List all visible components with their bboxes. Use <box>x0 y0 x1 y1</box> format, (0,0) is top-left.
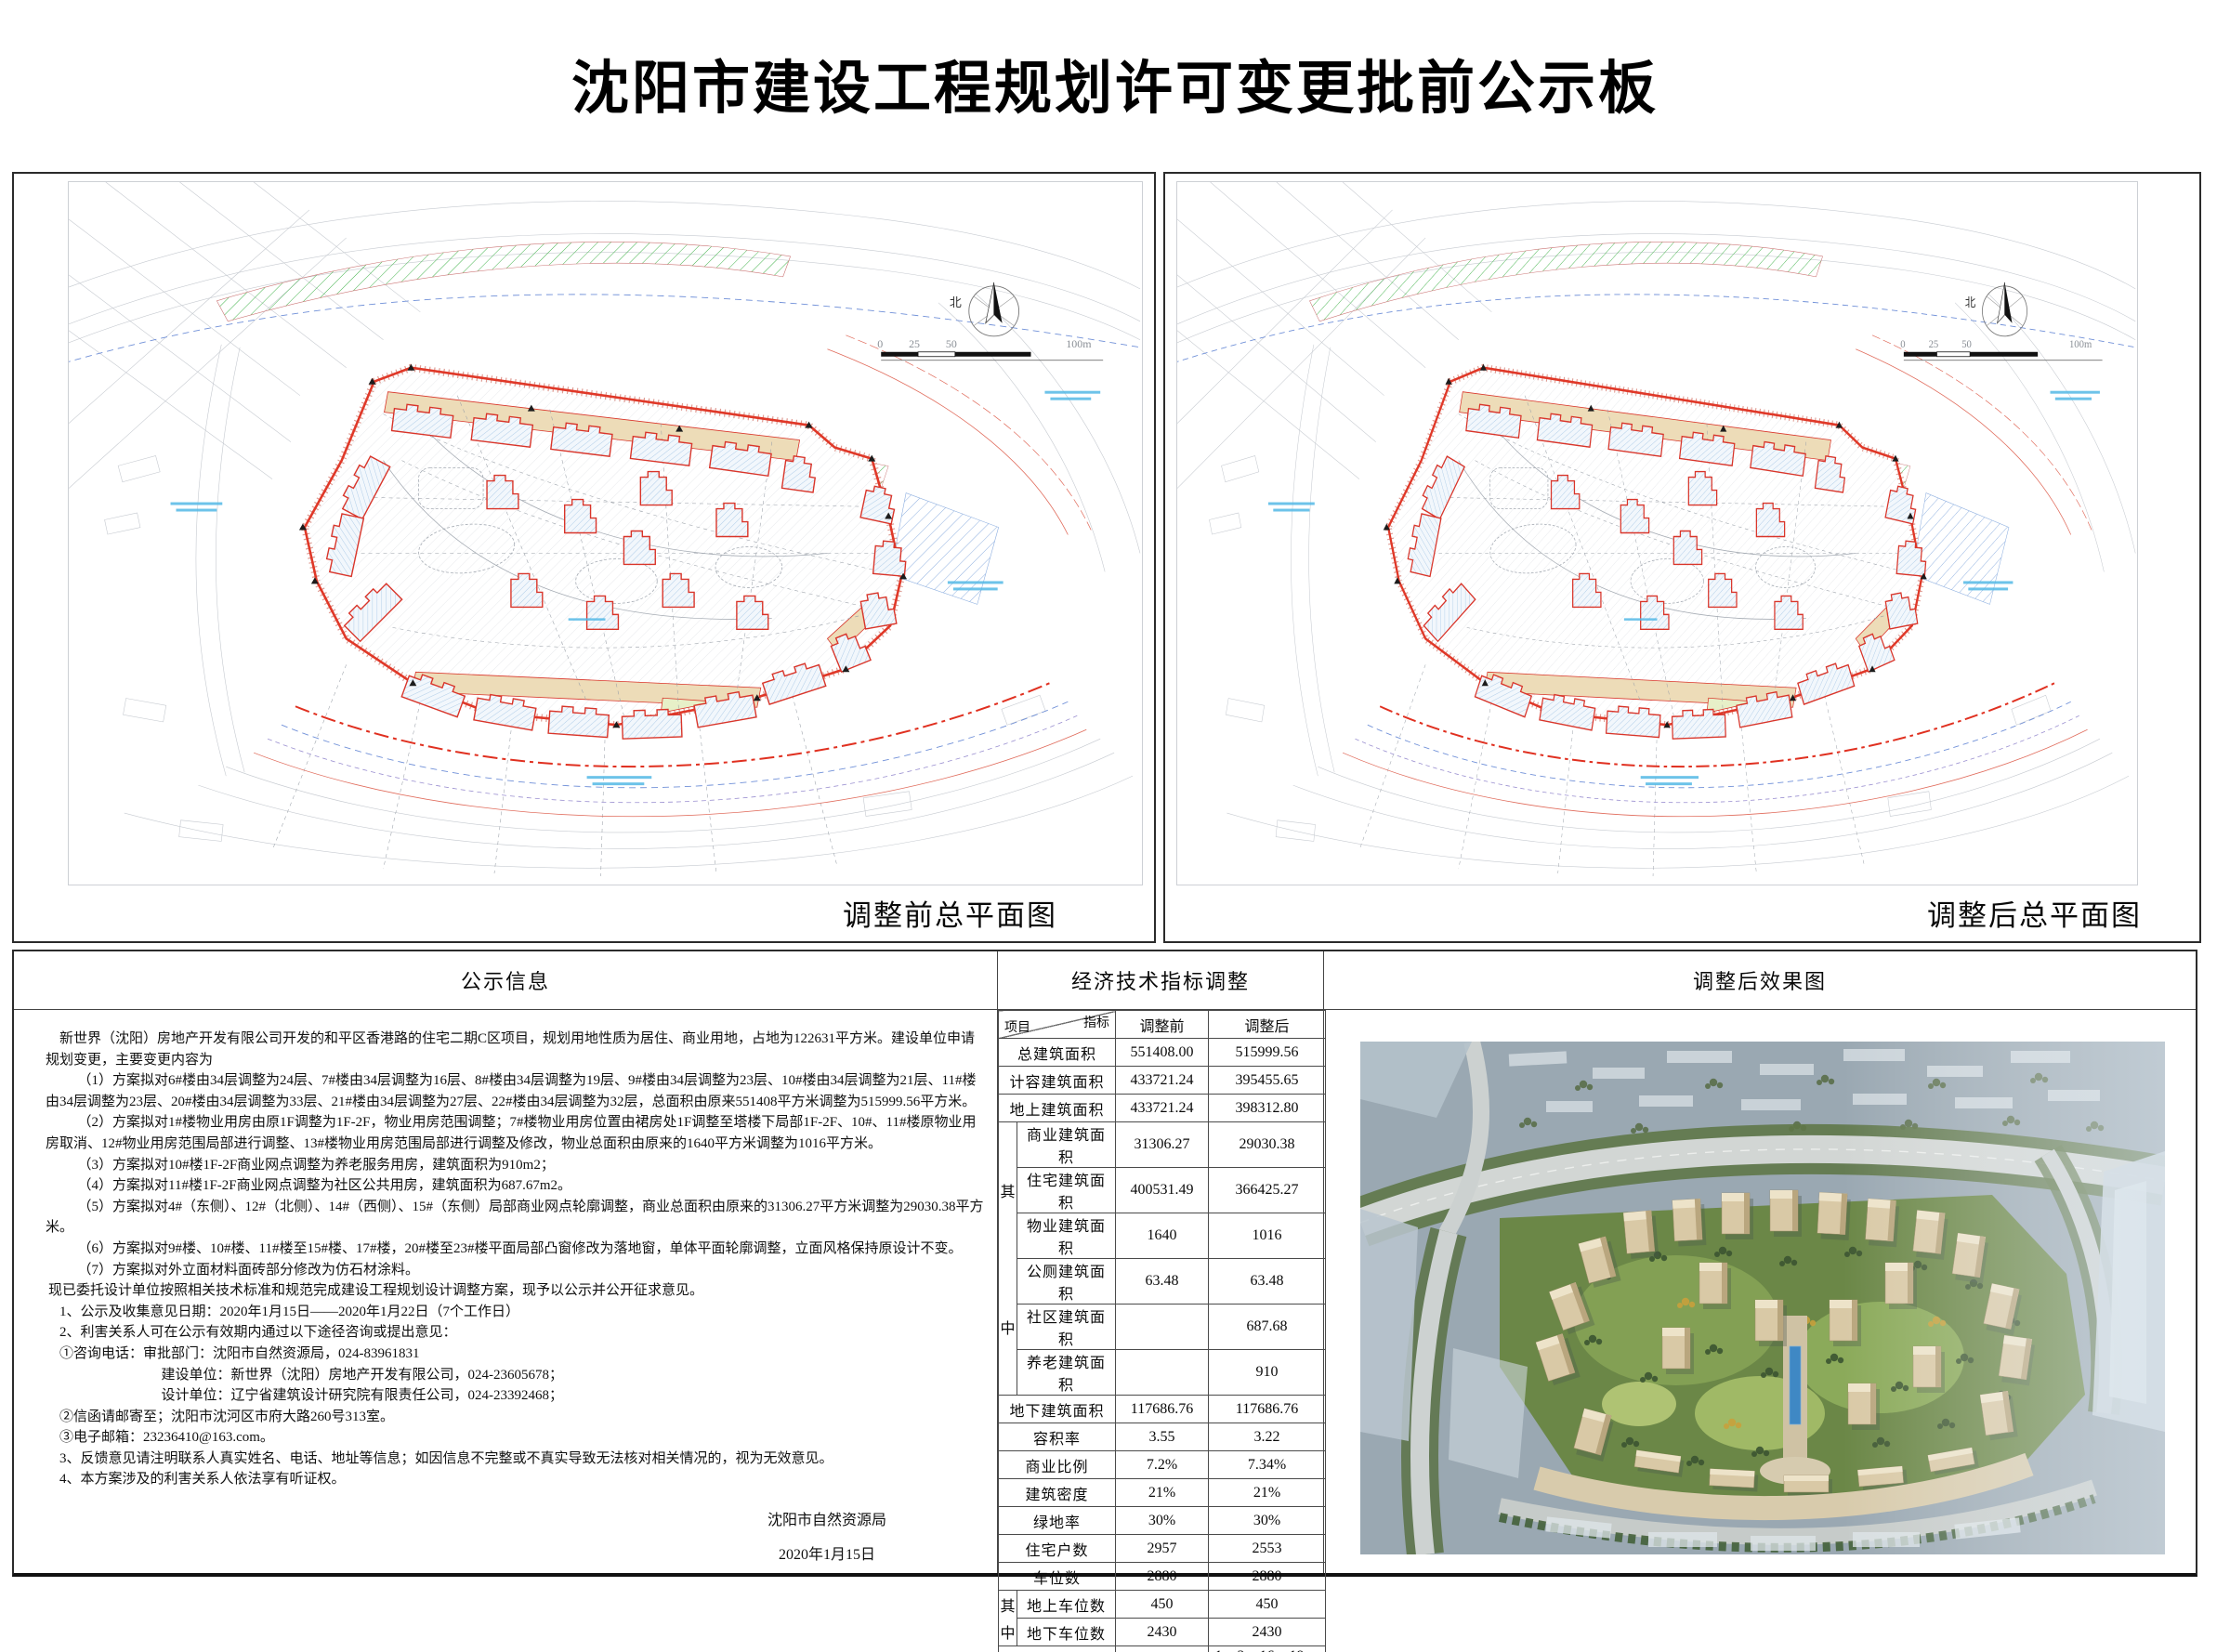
render-body <box>1324 1010 2196 1578</box>
notice-paragraph: 2、利害关系人可在公示有效期内通过以下途径咨询或提出意见： <box>46 1322 986 1344</box>
col-header-before: 调整前 <box>1116 1011 1209 1039</box>
table-row: 住宅户数29572553 <box>999 1535 1326 1563</box>
notice-paragraph: ③电子邮箱：23236410@163.com。 <box>46 1427 986 1449</box>
col-header-after: 调整后 <box>1209 1011 1326 1039</box>
notice-paragraph: 3、反馈意见请注明联系人真实姓名、电话、地址等信息；如因信息不完整或不真实导致无… <box>46 1449 986 1470</box>
notice-paragraph: 4、本方案涉及的利害关系人依法享有听证权。 <box>46 1469 986 1490</box>
notice-paragraph: （2）方案拟对1#楼物业用房由原1F调整为1F-2F，物业用房范围调整；7#楼物… <box>46 1112 986 1154</box>
haze-overlay <box>1360 1042 2165 1554</box>
site-plan-after <box>1176 181 2138 885</box>
notice-paragraph: 1、公示及收集意见日期：2020年1月15日——2020年1月22日（7个工作日… <box>46 1302 986 1323</box>
table-row: 地下建筑面积117686.76117686.76 <box>999 1396 1326 1423</box>
notice-paragraph: （1）方案拟对6#楼由34层调整为24层、7#楼由34层调整为16层、8#楼由3… <box>46 1070 986 1112</box>
notice-paragraph: ②信函请邮寄至；沈阳市沈河区市府大路260号313室。 <box>46 1407 986 1428</box>
site-plan-before <box>68 181 1143 885</box>
rendering-aerial-view <box>1360 1042 2165 1554</box>
group-cell-qizhong-2: 其中 <box>999 1591 1017 1646</box>
plan-caption-after: 调整后总平面图 <box>1927 892 2142 934</box>
signature-org: 沈阳市自然资源局 <box>674 1503 980 1538</box>
notice-board-page: 沈阳市建设工程规划许可变更批前公示板 调整前总平面图 调整后总平面图 公示信息 … <box>0 0 2230 1652</box>
indicators-table: 指标 项目 调整前 调整后 总建筑面积551408.00515999.56 计容… <box>998 1010 1326 1652</box>
notice-header: 公示信息 <box>461 965 550 995</box>
table-row: 社区建筑面积687.68 <box>999 1305 1326 1350</box>
notice-paragraph: （6）方案拟对9#楼、10#楼、11#楼至15#楼、17#楼，20#楼至23#楼… <box>46 1239 986 1260</box>
signature-date: 2020年1月15日 <box>674 1538 980 1572</box>
notice-paragraph: （3）方案拟对10#楼1F-2F商业网点调整为养老服务用房，建筑面积为910m2… <box>46 1155 986 1176</box>
diagonal-header-cell: 指标 项目 <box>999 1011 1116 1039</box>
table-row: 绿地率30%30% <box>999 1507 1326 1535</box>
render-header-band: 调整后效果图 <box>1324 951 2196 1010</box>
indicators-column: 经济技术指标调整 指标 项目 调整前 调整后 总建筑面积551408.00515… <box>997 951 1324 1573</box>
corner-label-item: 项目 <box>1004 1017 1030 1036</box>
indicators-header: 经济技术指标调整 <box>1071 965 1250 995</box>
table-row: 建筑密度21%21% <box>999 1479 1326 1507</box>
site-plan-before-svg <box>69 182 1142 885</box>
render-column: 调整后效果图 <box>1324 951 2196 1573</box>
table-row: 容积率3.553.22 <box>999 1423 1326 1451</box>
notice-paragraph: 建设单位：新世界（沈阳）房地产开发有限公司，024-23605678； <box>46 1365 986 1386</box>
indicators-header-band: 经济技术指标调整 <box>998 951 1323 1010</box>
table-row: 物业建筑面积16401016 <box>999 1213 1326 1259</box>
table-row: 住宅建筑面积400531.49366425.27 <box>999 1168 1326 1213</box>
table-row: 计容建筑面积433721.24395455.65 <box>999 1067 1326 1095</box>
notice-column: 公示信息 新世界（沈阳）房地产开发有限公司开发的和平区香港路的住宅二期C区项目，… <box>14 951 997 1573</box>
notice-paragraph: 设计单位：辽宁省建筑设计研究院有限责任公司，024-23392468； <box>46 1385 986 1407</box>
table-row: 商业比例7.2%7.34% <box>999 1451 1326 1479</box>
notice-paragraph: ①咨询电话：审批部门：沈阳市自然资源局，024-83961831 <box>46 1344 986 1365</box>
site-plan-after-svg <box>1177 182 2137 885</box>
table-row: 建筑层数1、2、23、30、33、34F1、2、16、19、21、23、24、2… <box>999 1646 1326 1652</box>
notice-paragraph: 新世界（沈阳）房地产开发有限公司开发的和平区香港路的住宅二期C区项目，规划用地性… <box>46 1029 986 1070</box>
notice-body: 新世界（沈阳）房地产开发有限公司开发的和平区香港路的住宅二期C区项目，规划用地性… <box>14 1010 997 1572</box>
group-cell-qizhong: 其中 <box>999 1122 1017 1396</box>
table-row: 其中 地上车位数450450 <box>999 1591 1326 1619</box>
table-header-row: 指标 项目 调整前 调整后 <box>999 1011 1326 1039</box>
notice-paragraph: （4）方案拟对11#楼1F-2F商业网点调整为社区公共用房，建筑面积为687.6… <box>46 1175 986 1197</box>
table-row: 总建筑面积551408.00515999.56 <box>999 1039 1326 1067</box>
plan-panel-before: 调整前总平面图 <box>12 172 1156 943</box>
table-row: 地上建筑面积433721.24398312.80 <box>999 1095 1326 1122</box>
notice-paragraph: 现已委托设计单位按照相关技术标准和规范完成建设工程规划设计调整方案，现予以公示并… <box>46 1280 986 1302</box>
signature-block: 沈阳市自然资源局 2020年1月15日 <box>674 1503 980 1572</box>
table-row: 养老建筑面积910 <box>999 1350 1326 1396</box>
table-row: 地下车位数24302430 <box>999 1619 1326 1646</box>
notice-header-band: 公示信息 <box>14 951 997 1010</box>
plan-panel-after: 调整后总平面图 <box>1163 172 2201 943</box>
notice-paragraph: （5）方案拟对4#（东侧）、12#（北侧）、14#（西侧）、15#（东侧）局部商… <box>46 1197 986 1239</box>
render-header: 调整后效果图 <box>1693 965 1827 995</box>
notice-paragraph: （7）方案拟对外立面材料面砖部分修改为仿石材涂料。 <box>46 1260 986 1281</box>
table-row: 车位数28802880 <box>999 1563 1326 1591</box>
bottom-section: 公示信息 新世界（沈阳）房地产开发有限公司开发的和平区香港路的住宅二期C区项目，… <box>12 950 2197 1577</box>
plan-caption-before: 调整前总平面图 <box>843 892 1057 934</box>
page-title: 沈阳市建设工程规划许可变更批前公示板 <box>0 41 2230 125</box>
table-row: 其中 商业建筑面积31306.2729030.38 <box>999 1122 1326 1168</box>
corner-label-indicator: 指标 <box>1083 1013 1109 1031</box>
table-row: 公厕建筑面积63.4863.48 <box>999 1259 1326 1305</box>
